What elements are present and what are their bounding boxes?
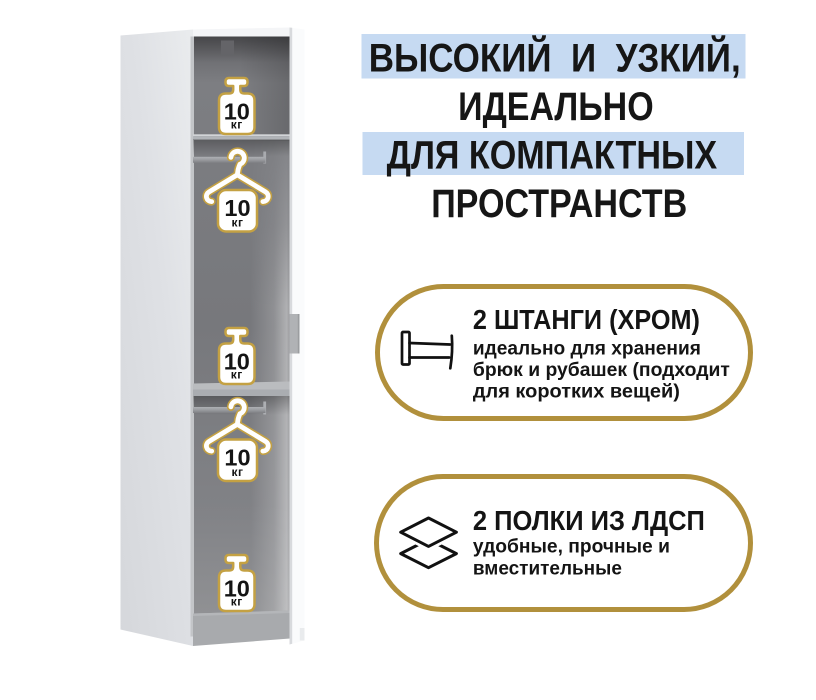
- svg-text:вместительные: вместительные: [473, 559, 622, 580]
- svg-text:ПРОСТРАНСТВ: ПРОСТРАНСТВ: [431, 182, 687, 226]
- svg-text:2 ШТАНГИ (ХРОМ): 2 ШТАНГИ (ХРОМ): [473, 304, 700, 335]
- svg-text:ВЫСОКИЙ И УЗКИЙ,: ВЫСОКИЙ И УЗКИЙ,: [369, 34, 741, 80]
- svg-text:ИДЕАЛЬНО: ИДЕАЛЬНО: [458, 85, 654, 129]
- svg-text:удобные, прочные и: удобные, прочные и: [473, 537, 670, 558]
- svg-text:идеально для хранения: идеально для хранения: [473, 338, 701, 359]
- svg-text:2 ПОЛКИ ИЗ ЛДСП: 2 ПОЛКИ ИЗ ЛДСП: [473, 505, 705, 536]
- svg-text:для коротких вещей): для коротких вещей): [473, 381, 680, 402]
- svg-text:брюк и рубашек (подходит: брюк и рубашек (подходит: [473, 360, 730, 381]
- svg-text:ДЛЯ КОМПАКТНЫХ: ДЛЯ КОМПАКТНЫХ: [387, 133, 718, 177]
